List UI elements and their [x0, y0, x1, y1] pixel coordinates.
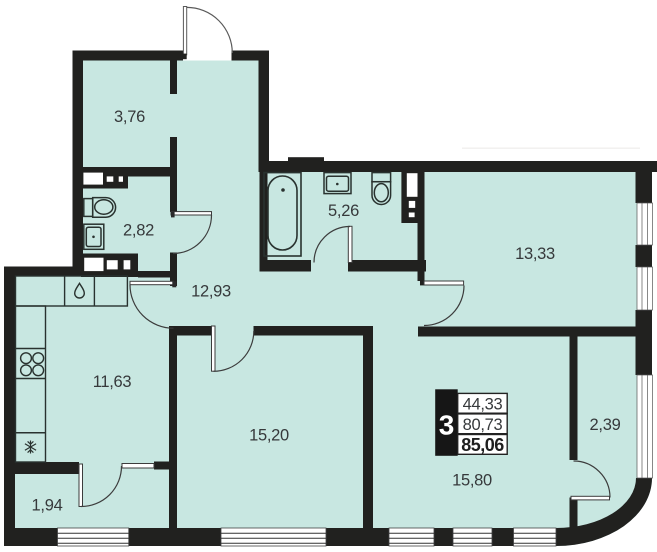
svg-text:44,33: 44,33: [463, 396, 503, 414]
svg-text:15,80: 15,80: [452, 472, 492, 490]
svg-text:2,39: 2,39: [590, 416, 621, 434]
svg-text:15,20: 15,20: [249, 427, 289, 445]
svg-text:85,06: 85,06: [461, 435, 504, 455]
svg-text:1,94: 1,94: [32, 497, 63, 515]
svg-text:13,33: 13,33: [515, 245, 555, 263]
svg-text:3: 3: [439, 409, 455, 440]
svg-text:5,26: 5,26: [328, 202, 359, 220]
svg-text:80,73: 80,73: [463, 416, 503, 434]
svg-text:2,82: 2,82: [123, 222, 154, 240]
svg-text:11,63: 11,63: [93, 373, 132, 391]
svg-text:12,93: 12,93: [191, 283, 231, 301]
svg-text:3,76: 3,76: [114, 108, 145, 126]
